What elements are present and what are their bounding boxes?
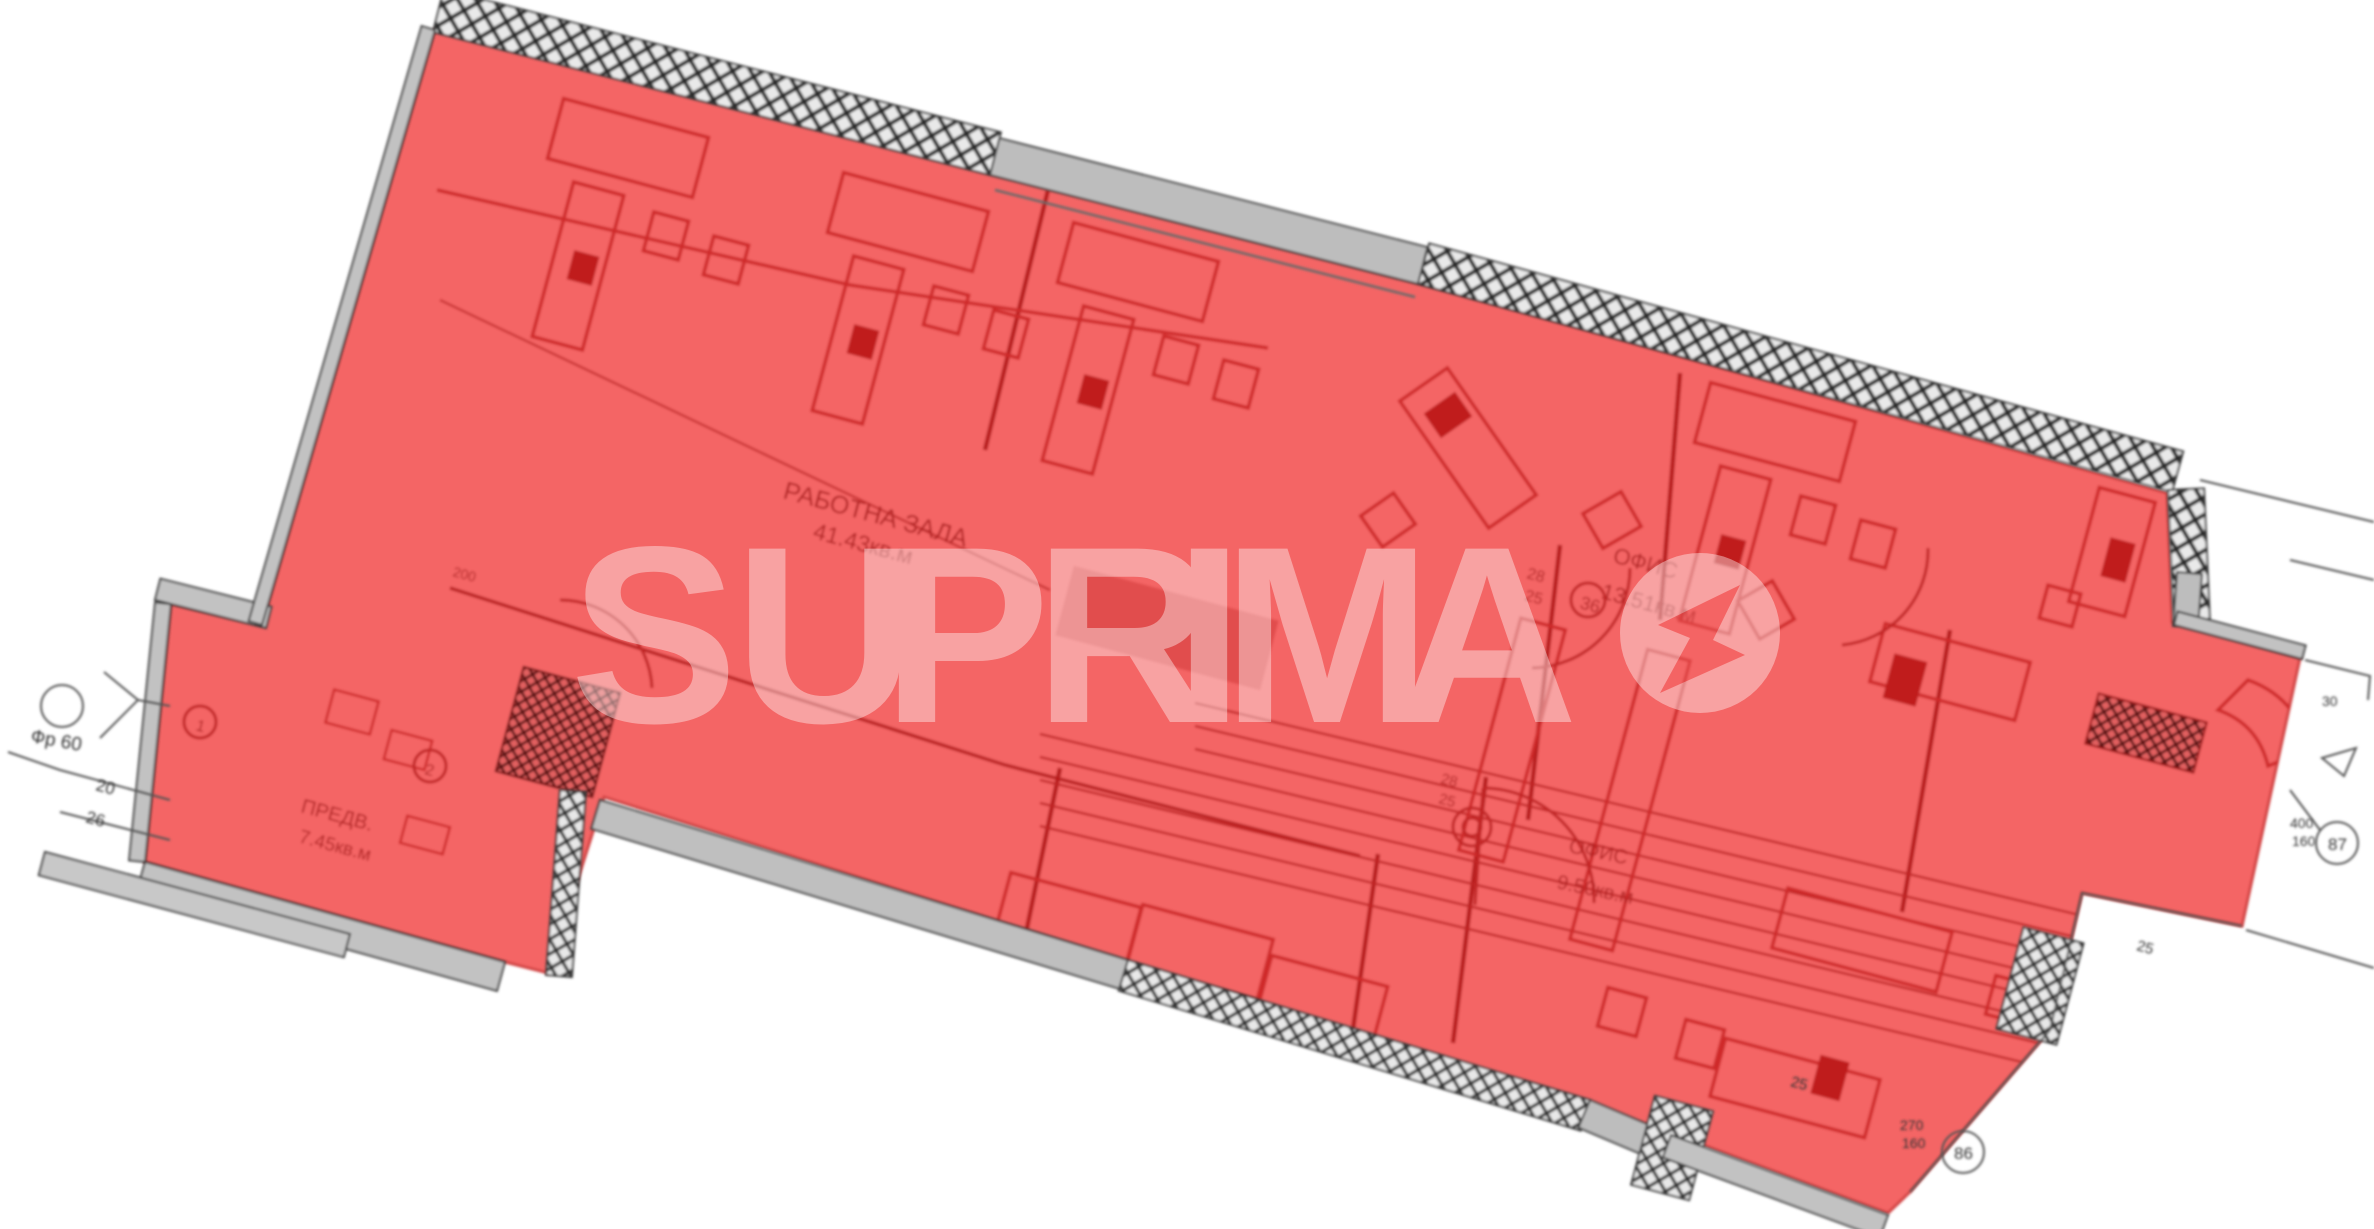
svg-text:270: 270 bbox=[1900, 1117, 1924, 1133]
svg-text:160: 160 bbox=[2292, 833, 2316, 849]
svg-text:400: 400 bbox=[2290, 815, 2314, 831]
svg-text:87: 87 bbox=[2328, 835, 2347, 854]
svg-text:30: 30 bbox=[2322, 693, 2338, 709]
svg-text:A: A bbox=[1396, 495, 1578, 776]
svg-text:86: 86 bbox=[1954, 1144, 1973, 1163]
svg-text:160: 160 bbox=[1902, 1135, 1926, 1151]
svg-text:P: P bbox=[882, 495, 1050, 776]
svg-text:S: S bbox=[570, 495, 738, 776]
